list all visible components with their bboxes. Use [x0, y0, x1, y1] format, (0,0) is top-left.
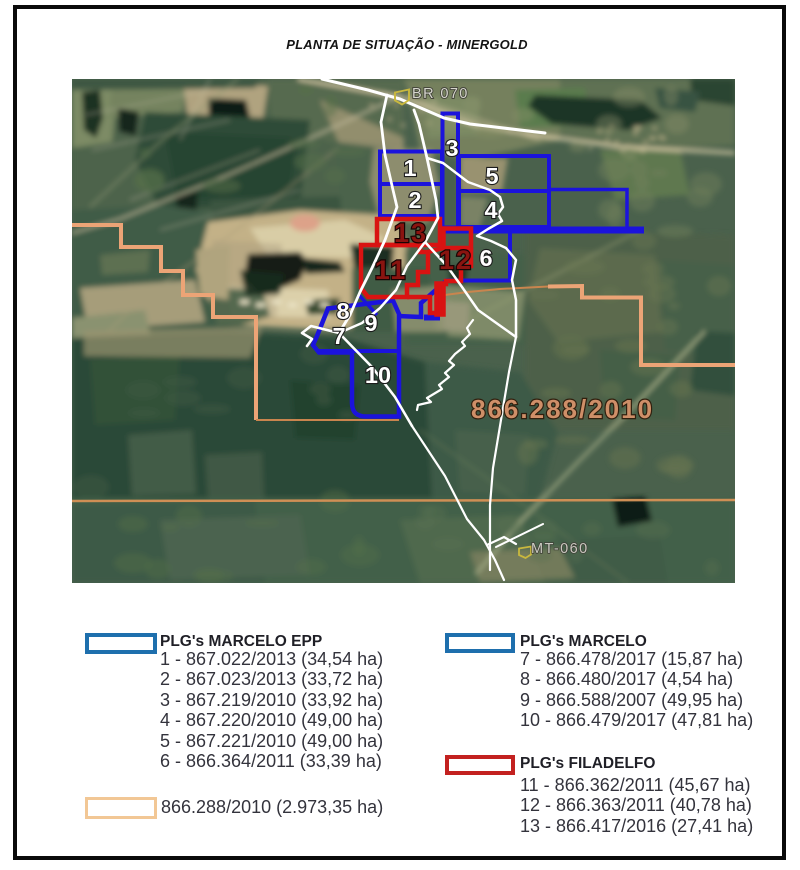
svg-text:13: 13 — [394, 218, 428, 248]
svg-text:6: 6 — [479, 245, 492, 271]
svg-text:5: 5 — [485, 163, 498, 189]
svg-text:866.288/2010: 866.288/2010 — [471, 394, 654, 424]
svg-text:10: 10 — [365, 362, 391, 388]
svg-text:11: 11 — [375, 255, 408, 285]
svg-text:7: 7 — [332, 323, 345, 349]
svg-text:9: 9 — [364, 310, 377, 336]
svg-text:1: 1 — [403, 155, 416, 181]
svg-text:4: 4 — [484, 197, 497, 223]
svg-text:MT-060: MT-060 — [531, 541, 589, 557]
svg-text:2: 2 — [408, 187, 421, 213]
svg-text:12: 12 — [439, 245, 473, 275]
svg-text:8: 8 — [336, 298, 349, 324]
svg-text:3: 3 — [445, 135, 458, 161]
svg-text:BR 070: BR 070 — [412, 86, 469, 102]
